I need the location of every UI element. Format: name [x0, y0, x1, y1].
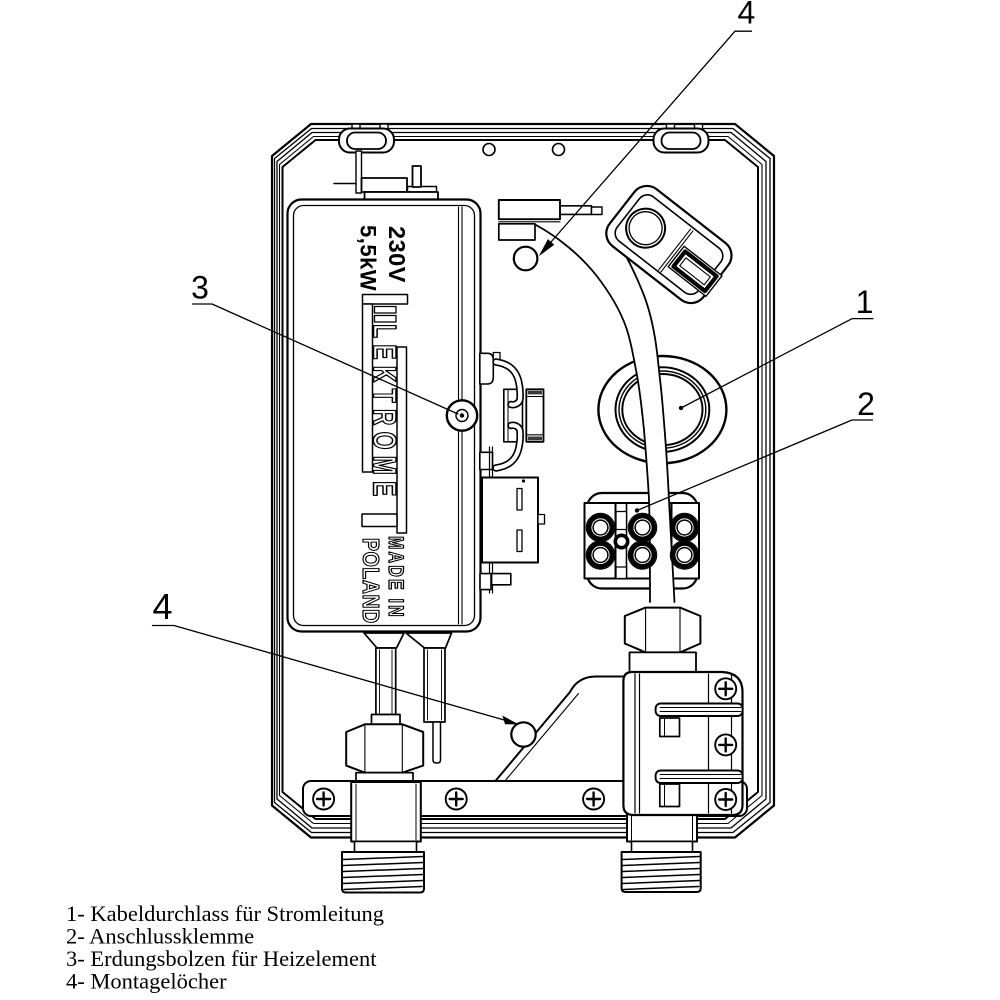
svg-text:MADE IN: MADE IN	[385, 536, 409, 619]
svg-text:230V: 230V	[384, 226, 410, 283]
svg-text:5,5kW: 5,5kW	[356, 225, 381, 291]
svg-text:2: 2	[857, 386, 875, 422]
svg-text:1: 1	[856, 284, 874, 320]
svg-text:POLAND: POLAND	[358, 538, 384, 624]
svg-text:4: 4	[738, 0, 756, 31]
svg-text:2- Anschlussklemme: 2- Anschlussklemme	[66, 924, 254, 949]
svg-text:4: 4	[152, 586, 172, 627]
svg-text:LEKTROME: LEKTROME	[367, 324, 403, 503]
svg-text:3- Erdungsbolzen für Heizeleme: 3- Erdungsbolzen für Heizelement	[66, 946, 377, 971]
svg-text:4- Montagelöcher: 4- Montagelöcher	[66, 969, 227, 994]
svg-text:1- Kabeldurchlass für Stromlei: 1- Kabeldurchlass für Stromleitung	[66, 901, 384, 926]
svg-text:3: 3	[191, 270, 209, 306]
